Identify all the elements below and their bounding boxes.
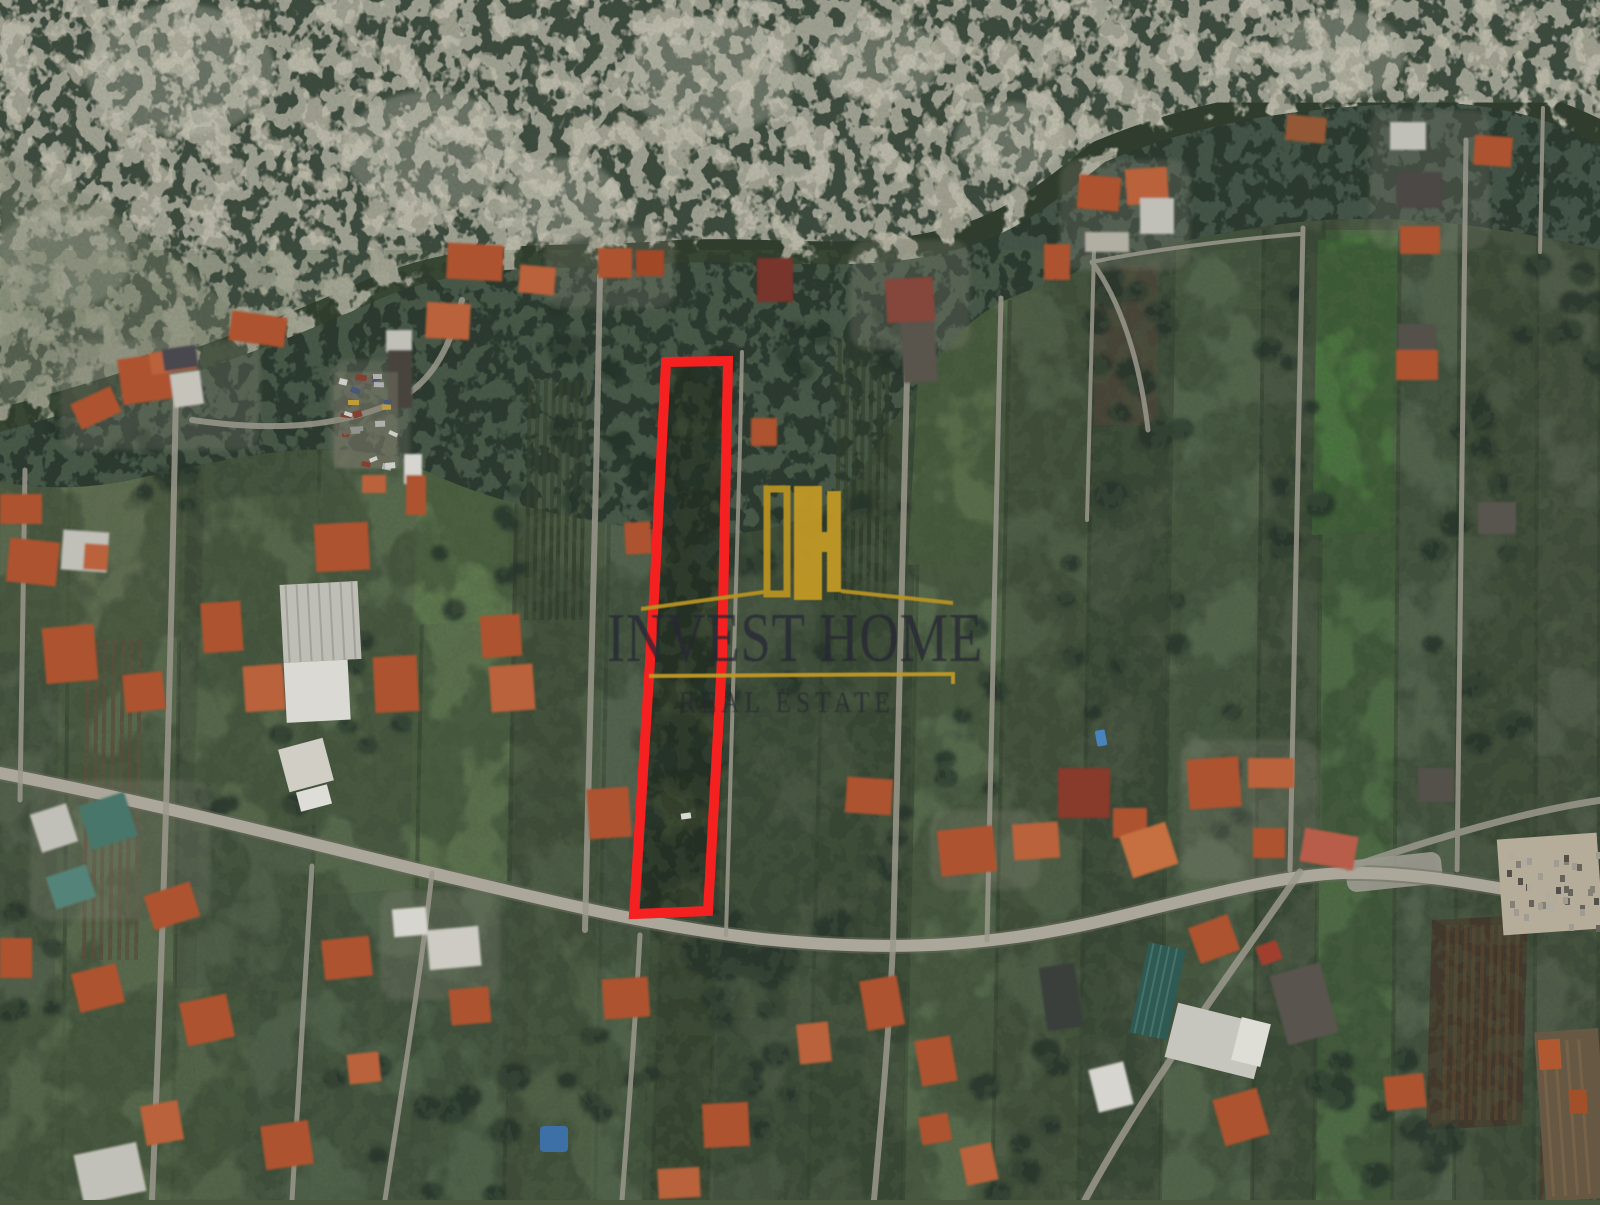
svg-text:REAL ESTATE: REAL ESTATE <box>679 686 895 719</box>
svg-text:INVEST HOME: INVEST HOME <box>607 600 983 677</box>
